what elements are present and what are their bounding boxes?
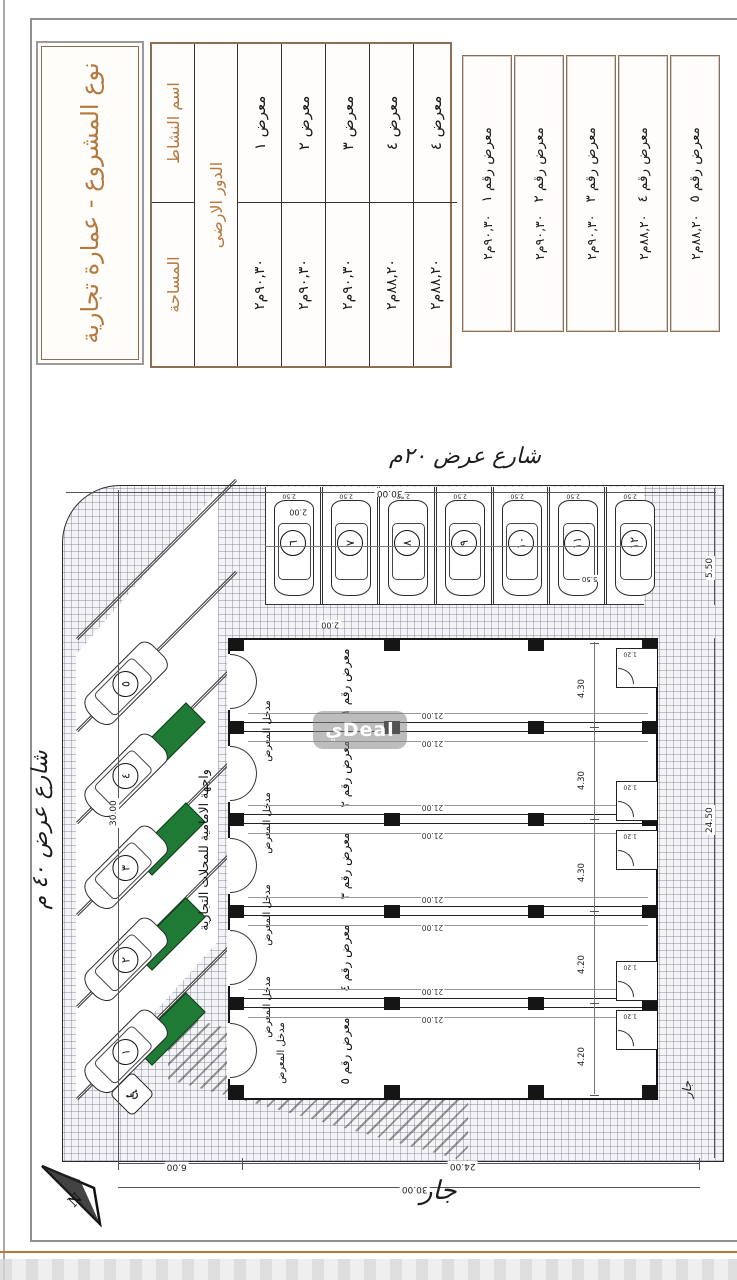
dim-line [714,488,715,605]
dim-label: 4.30 [578,677,587,700]
dim-label: 4.20 [578,1045,587,1068]
table-header-area: المساحة [152,203,194,366]
dim-label: 21.00 [421,711,444,720]
dim-label: 21.00 [421,987,444,996]
project-type-title: نوع المشروع - عمارة تجارية [76,62,104,343]
building: مدخل المعرض مدخل المعرض مدخل المعرض مدخل… [228,638,658,1100]
dim-line [248,989,648,990]
street-name-top: شارع عرض ٤٠ م [28,630,53,1030]
dim-label: 21.00 [421,1015,444,1024]
watermark: يDeal [313,711,407,749]
dim-label: 4.30 [578,861,587,884]
dim-line [248,741,648,742]
unit-card: معرض رقم ١ ٩٠,٣٠م٢ [462,55,512,332]
dim-line [714,638,715,1158]
unit-card: معرض رقم ٥ ٨٨,٢٠م٢ [670,55,720,332]
wc-cubicle: 1.20 [616,648,657,688]
dim-line [248,833,648,834]
dim-line [248,805,648,806]
table-row: معرض ٣ ٩٠,٣٠م٢ [326,44,370,366]
wheel-stop-line [265,546,643,547]
dim-label: 5.50 [580,575,600,582]
table-header-activity: اسم النشاط [152,44,194,203]
page-bottom-rule [0,1251,737,1253]
dim-label: 21.00 [421,895,444,904]
dim-line [248,713,648,714]
entrance-door [227,746,259,802]
dim-label: 30.00 [375,487,405,496]
dim-label: 21.00 [421,923,444,932]
dim-label: 24.00 [448,1160,478,1169]
dim-line [594,642,595,1094]
entrance-label: مدخل المعرض [276,1008,287,1098]
dim-label: 6.00 [165,1161,189,1170]
entrance-door [227,654,259,710]
entrance-label: مدخل المعرض [262,870,273,960]
next-page-edge [0,1259,737,1280]
project-type-box: نوع المشروع - عمارة تجارية [36,41,144,365]
area-table: اسم النشاط المساحة الدور الارضى معرض ١ ٩… [150,42,452,368]
bay-label: معرض رقم ٥ [338,1005,352,1097]
dim-label: 5.50 [706,556,715,580]
dim-label: 21.00 [421,803,444,812]
unit-card: معرض رقم ٣ ٩٠,٣٠م٢ [566,55,616,332]
dim-label: 2.00 [287,507,309,515]
unit-card: معرض رقم ٤ ٨٨,٢٠م٢ [618,55,668,332]
north-arrow-icon: N [34,1158,108,1232]
wc-cubicle: 1.20 [616,1010,657,1050]
wc-cubicle: 1.20 [616,781,657,821]
entrance-door [227,1023,259,1079]
dim-line [118,1163,700,1164]
dim-label: 4.30 [578,769,587,792]
entrance-label: مدخل المعرض [262,962,273,1052]
table-row: معرض ٢ ٩٠,٣٠م٢ [282,44,326,366]
dim-line [248,925,648,926]
wc-cubicle: 1.20 [616,830,657,870]
entrance-door [227,930,259,986]
entrance-label: مدخل المعرض [262,778,273,868]
dim-line [248,1017,648,1018]
neighbor-note-left: جار [420,1176,457,1206]
table-subheader-floor: الدور الارضى [195,44,238,366]
entrance-door [227,838,259,894]
table-row: معرض ١ ٩٠,٣٠م٢ [238,44,282,366]
unit-card: معرض رقم ٢ ٩٠,٣٠م٢ [514,55,564,332]
wc-cubicle: 1.20 [616,961,657,1001]
dim-label: 4.20 [578,953,587,976]
drawing-sheet: نوع المشروع - عمارة تجارية اسم النشاط ال… [0,0,737,1280]
dim-label: 2.00 [319,620,341,628]
dim-label: 24.50 [706,805,715,835]
dim-label: 30.00 [110,798,119,828]
neighbor-note-bottom: جار [680,1081,694,1098]
facade-note: واجهة الامامية للمحلات التجارية [196,690,211,1010]
dim-label: 21.00 [421,739,444,748]
scanned-site-plan-page: نوع المشروع - عمارة تجارية اسم النشاط ال… [0,0,737,1280]
photo-edge-line [3,0,5,1280]
table-row: معرض ٤ ٨٨,٢٠م٢ [370,44,414,366]
street-name-right: شارع عرض ٢٠م [340,444,590,469]
entrance-label: مدخل المعرض [262,686,273,776]
dim-label: 21.00 [421,831,444,840]
dim-line [248,897,648,898]
table-row: معرض ٤ ٨٨,٢٠م٢ [414,44,457,366]
